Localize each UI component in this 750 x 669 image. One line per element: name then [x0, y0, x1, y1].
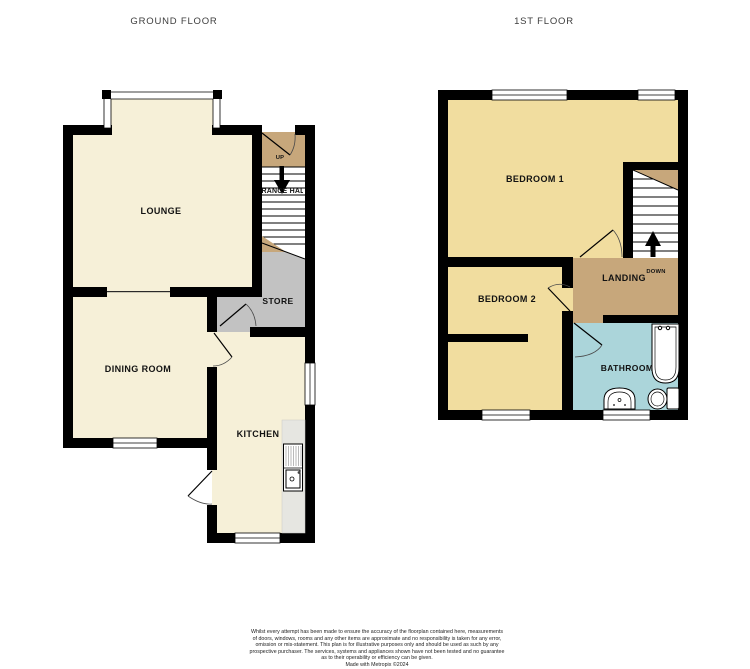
bedroom1-window-right	[638, 90, 675, 100]
kitchen-label: KITCHEN	[237, 429, 280, 439]
ground-floor-plan: GROUND FLOOR	[63, 16, 315, 543]
lounge-label: LOUNGE	[141, 206, 182, 216]
disclaimer-line: Whilst every attempt has been made to en…	[237, 629, 517, 636]
landing-label: LANDING	[602, 273, 646, 283]
bathroom-window	[603, 410, 650, 420]
kitchen-counter	[282, 420, 305, 533]
bedroom2-window	[482, 410, 530, 420]
kitchen-side-window	[305, 363, 315, 405]
disclaimer-line: of doors, windows, rooms and any other i…	[237, 636, 517, 643]
dining-room-label: DINING ROOM	[105, 364, 171, 374]
disclaimer-line: prospective purchaser. The services, sys…	[237, 649, 517, 656]
down-label: DOWN	[646, 269, 665, 275]
disclaimer-line: as to their operability or efficiency ca…	[237, 655, 517, 662]
dining-window	[113, 438, 157, 448]
bedroom1-window-left	[492, 90, 567, 100]
store-label: STORE	[262, 296, 293, 306]
toilet	[648, 388, 679, 409]
ground-floor-title: GROUND FLOOR	[130, 16, 217, 27]
first-floor-title: 1ST FLOOR	[514, 16, 574, 27]
back-door	[188, 471, 212, 504]
bedroom2-label: BEDROOM 2	[478, 294, 536, 304]
made-with-credit: Made with Metropix ©2024	[237, 662, 517, 669]
bay-floor	[111, 99, 213, 135]
kitchen-bottom-window	[235, 533, 280, 543]
landing-floor	[573, 258, 678, 323]
bedroom1-label: BEDROOM 1	[506, 174, 564, 184]
disclaimer-line: omission or mis-statement. This plan is …	[237, 642, 517, 649]
first-floor-plan: 1ST FLOOR	[438, 16, 688, 420]
kitchen-sink	[284, 444, 303, 491]
up-label: UP	[276, 155, 284, 161]
floorplan-canvas: GROUND FLOOR	[0, 0, 750, 665]
lounge-dining-opening-line	[107, 291, 170, 292]
bathtub	[652, 324, 679, 383]
bathroom-label: BATHROOM	[601, 363, 654, 373]
basin	[604, 388, 635, 409]
disclaimer: Whilst every attempt has been made to en…	[237, 629, 517, 669]
